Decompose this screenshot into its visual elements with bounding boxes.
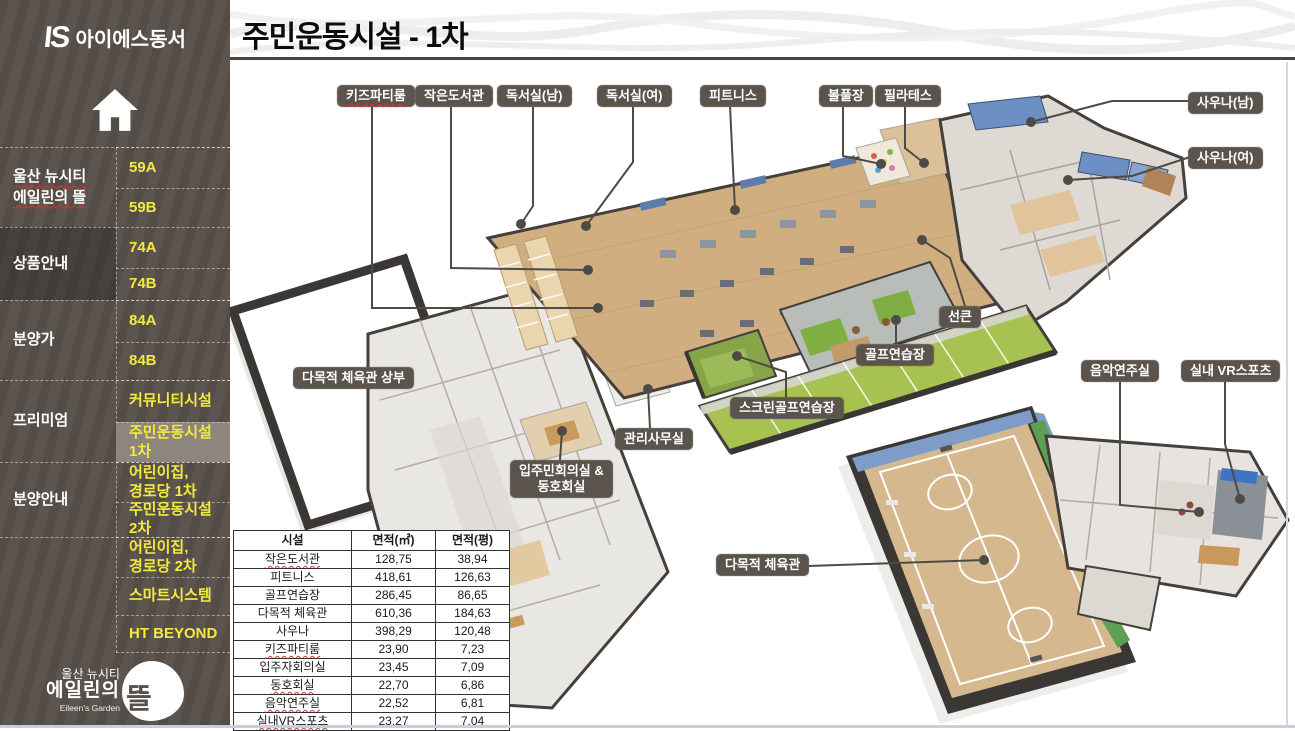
callout-dot-kids-party-room (593, 303, 603, 313)
table-row: 사우나398,29120,48 (234, 623, 510, 641)
sidebar-item-community[interactable]: 커뮤니티시설 (116, 380, 230, 422)
sidebar-item-59b[interactable]: 59B (116, 188, 230, 227)
cell-area-pyeong: 6,81 (436, 695, 510, 713)
cell-area-m2: 23,90 (352, 641, 436, 659)
cell-facility-name: 피트니스 (234, 569, 352, 587)
cell-facility-name: 키즈파티룸 (234, 641, 352, 659)
sidebar-group-label: 프리미엄 (0, 411, 68, 431)
sidebar-group-label: 울산 뉴시티 에일린의 뜰 (0, 167, 86, 208)
sidebar-group-label: 분양안내 (0, 490, 68, 510)
callout-dot-pilates (919, 158, 929, 168)
callout-dot-sauna-f (1063, 175, 1073, 185)
table-row: 키즈파티룸23,907,23 (234, 641, 510, 659)
callout-dot-fitness (730, 205, 740, 215)
sidebar-item-label: 74B (116, 275, 157, 294)
sidebar-item-label: HT BEYOND (116, 625, 217, 644)
footer-logo-mark: 뜰 (126, 677, 152, 717)
table-row: 동호회실22,706,86 (234, 677, 510, 695)
callout-line-reading-room-m (521, 106, 533, 224)
footer-logo-blob: 뜰 (122, 661, 184, 721)
cell-facility-name: 동호회실 (234, 677, 352, 695)
sidebar-item-label: 84A (116, 312, 157, 331)
cell-area-pyeong: 126,63 (436, 569, 510, 587)
cell-facility-name: 골프연습장 (234, 587, 352, 605)
cell-area-m2: 23,45 (352, 659, 436, 677)
scrollbar[interactable] (1286, 62, 1288, 728)
cell-area-m2: 128,75 (352, 551, 436, 569)
table-row: 다목적 체육관610,36184,63 (234, 605, 510, 623)
cell-facility-name: 작은도서관 (234, 551, 352, 569)
callout-dot-music-room (1194, 507, 1204, 517)
page-header: 주민운동시설 - 1차 (230, 0, 1295, 60)
sidebar-group-label: 분양가 (0, 330, 54, 350)
cell-area-pyeong: 120,48 (436, 623, 510, 641)
sidebar-item-label: 어린이집, 경로당 2차 (116, 539, 197, 577)
callout-dot-meeting-club (557, 426, 567, 436)
callout-dot-screen-golf (732, 351, 742, 361)
sidebar-item-label: 커뮤니티시설 (116, 392, 212, 411)
callout-dot-vr-sports (1235, 494, 1245, 504)
cell-area-pyeong: 184,63 (436, 605, 510, 623)
sidebar-group-label: 상품안내 (0, 254, 68, 274)
callout-dot-sauna-m (1026, 117, 1036, 127)
facility-area-table: 시설 면적(㎡) 면적(평) 작은도서관128,7538,94피트니스418,6… (233, 530, 510, 731)
callout-dot-ball-pool (876, 159, 886, 169)
footer-logo: 울산 뉴시티 에일린의 Eileen's Garden 뜰 (0, 653, 230, 728)
cell-area-pyeong: 7,23 (436, 641, 510, 659)
callout-dot-reading-room-f (581, 221, 591, 231)
cell-area-pyeong: 86,65 (436, 587, 510, 605)
sidebar-item-74b[interactable]: 74B (116, 268, 230, 300)
col-area-m2: 면적(㎡) (352, 531, 436, 551)
sidebar-item-label: 59B (116, 199, 157, 218)
sidebar-item-59a[interactable]: 59A (116, 147, 230, 188)
cell-area-m2: 610,36 (352, 605, 436, 623)
sidebar-item-label: 84B (116, 352, 157, 371)
table-row: 피트니스418,61126,63 (234, 569, 510, 587)
sidebar-item-74a[interactable]: 74A (116, 227, 230, 268)
sidebar-item-ht-beyond[interactable]: HT BEYOND (116, 615, 230, 653)
footer-logo-line1: 울산 뉴시티 (46, 668, 120, 681)
cell-area-pyeong: 38,94 (436, 551, 510, 569)
sidebar: IS 아이에스동서 울산 뉴시티 에일린의 뜰상품안내분양가프리미엄분양안내 5… (0, 0, 230, 728)
sidebar-item-label: 주민운동시설 1차 (116, 424, 212, 462)
cell-area-pyeong: 6,86 (436, 677, 510, 695)
cell-facility-name: 사우나 (234, 623, 352, 641)
sidebar-item-label: 스마트시스템 (116, 587, 212, 606)
cell-area-m2: 398,29 (352, 623, 436, 641)
header-rule (230, 57, 1295, 60)
cell-area-pyeong: 7,09 (436, 659, 510, 677)
footer-logo-sub: Eileen's Garden (46, 704, 120, 713)
app-window: { "brand": {"mark": "IS", "name": "아이에스동… (0, 0, 1295, 728)
cell-area-m2: 286,45 (352, 587, 436, 605)
page-title: 주민운동시설 - 1차 (242, 12, 468, 56)
sidebar-item-sports-2[interactable]: 주민운동시설 2차 (116, 502, 230, 537)
col-area-pyeong: 면적(평) (436, 531, 510, 551)
sidebar-item-sports-1[interactable]: 주민운동시설 1차 (116, 422, 230, 462)
callout-dot-gym (979, 555, 989, 565)
col-facility: 시설 (234, 531, 352, 551)
sidebar-item-84a[interactable]: 84A (116, 300, 230, 342)
sidebar-item-daycare-1[interactable]: 어린이집, 경로당 1차 (116, 462, 230, 502)
cell-area-m2: 418,61 (352, 569, 436, 587)
sidebar-group-products[interactable]: 상품안내 (0, 227, 116, 300)
cell-facility-name: 음악연주실 (234, 695, 352, 713)
cell-area-m2: 22,52 (352, 695, 436, 713)
callout-dot-reading-room-m (516, 219, 526, 229)
cell-facility-name: 다목적 체육관 (234, 605, 352, 623)
music-vr-annex (1046, 436, 1288, 630)
callout-dot-golf-range (891, 315, 901, 325)
sidebar-item-label: 59A (116, 159, 157, 178)
sidebar-item-smart[interactable]: 스마트시스템 (116, 577, 230, 615)
sidebar-item-daycare-2[interactable]: 어린이집, 경로당 2차 (116, 537, 230, 577)
table-row: 골프연습장286,4586,65 (234, 587, 510, 605)
sidebar-item-84b[interactable]: 84B (116, 342, 230, 380)
table-row: 음악연주실22,526,81 (234, 695, 510, 713)
sidebar-nav: 울산 뉴시티 에일린의 뜰상품안내분양가프리미엄분양안내 59A59B74A74… (0, 0, 230, 728)
sidebar-item-label: 74A (116, 239, 157, 258)
footer-logo-line2: 에일린의 (46, 681, 120, 702)
callout-dot-management-office (643, 384, 653, 394)
cell-facility-name: 입주자회의실 (234, 659, 352, 677)
sidebar-item-label: 어린이집, 경로당 1차 (116, 464, 197, 502)
cell-area-m2: 22,70 (352, 677, 436, 695)
table-row: 작은도서관128,7538,94 (234, 551, 510, 569)
sidebar-item-label: 주민운동시설 2차 (116, 501, 212, 539)
callout-dot-small-library (583, 265, 593, 275)
callout-dot-sunken (917, 235, 927, 245)
table-row: 입주자회의실23,457,09 (234, 659, 510, 677)
table-header-row: 시설 면적(㎡) 면적(평) (234, 531, 510, 551)
